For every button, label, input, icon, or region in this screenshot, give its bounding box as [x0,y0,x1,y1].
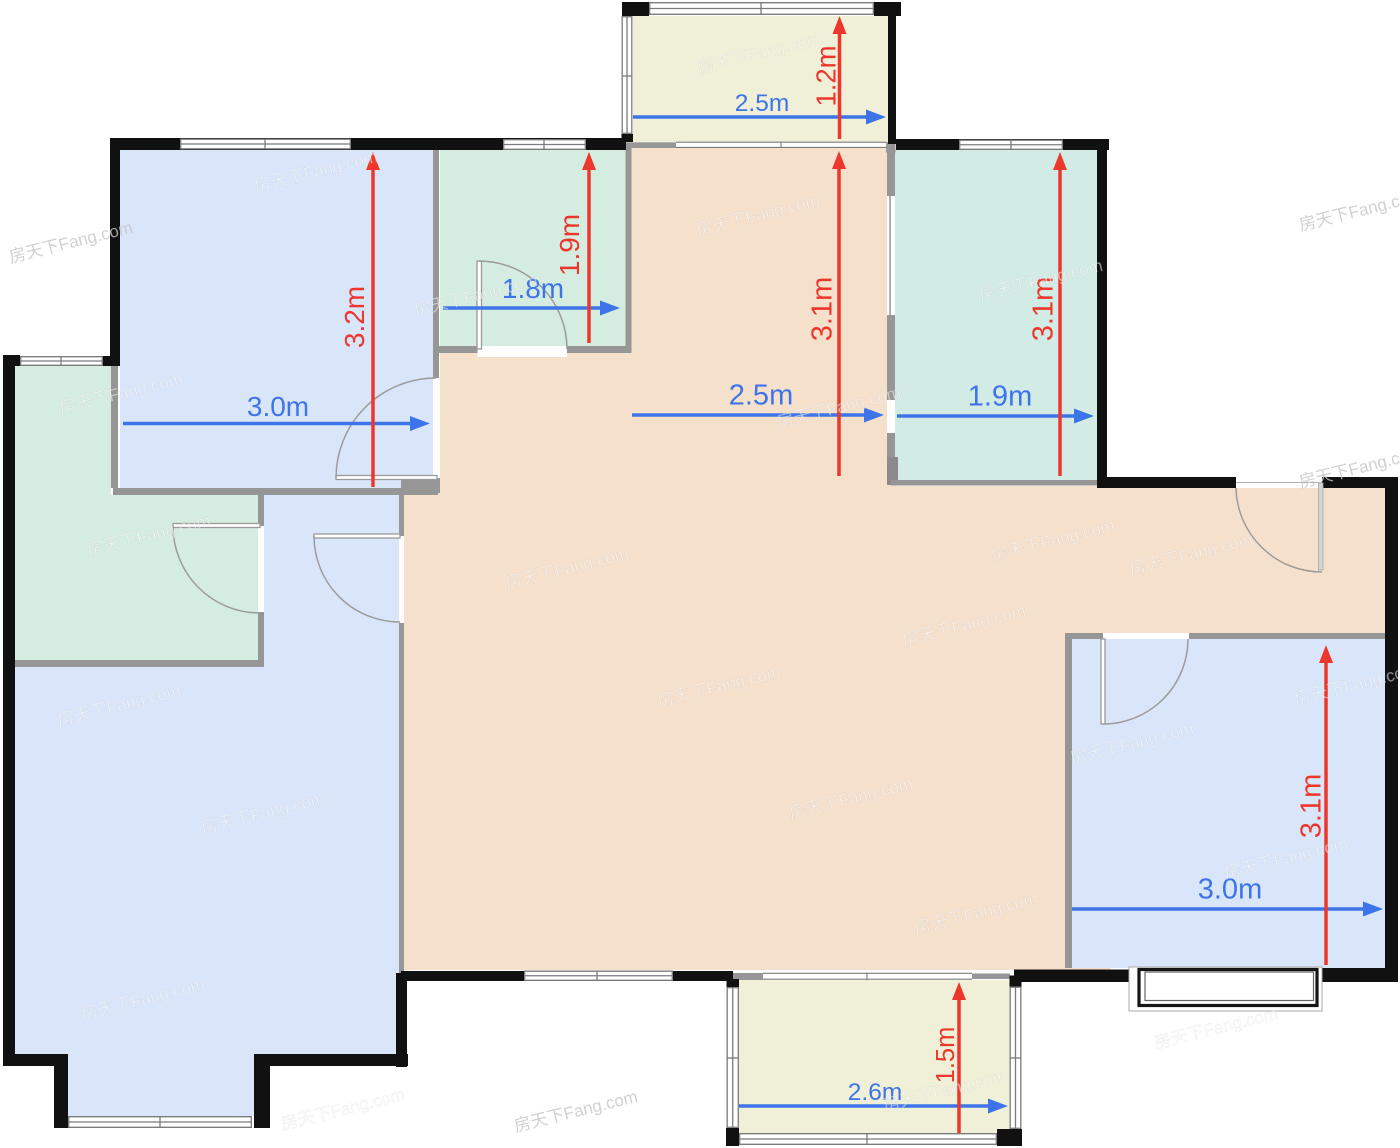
svg-text:房天下Fang.com: 房天下Fang.com [512,1087,639,1136]
svg-text:1.2m: 1.2m [810,45,841,106]
svg-text:2.5m: 2.5m [729,379,793,411]
svg-text:3.2m: 3.2m [339,286,370,348]
svg-text:2.5m: 2.5m [735,90,789,117]
svg-text:房天下Fang.com: 房天下Fang.com [279,1085,406,1134]
svg-text:1.5m: 1.5m [932,1027,960,1084]
svg-text:3.0m: 3.0m [247,391,309,422]
svg-text:3.1m: 3.1m [806,277,838,341]
svg-text:房天下Fang.com: 房天下Fang.com [1297,186,1400,235]
svg-text:1.9m: 1.9m [968,380,1032,412]
svg-text:1.9m: 1.9m [554,214,585,276]
svg-text:3.1m: 3.1m [1295,774,1327,838]
